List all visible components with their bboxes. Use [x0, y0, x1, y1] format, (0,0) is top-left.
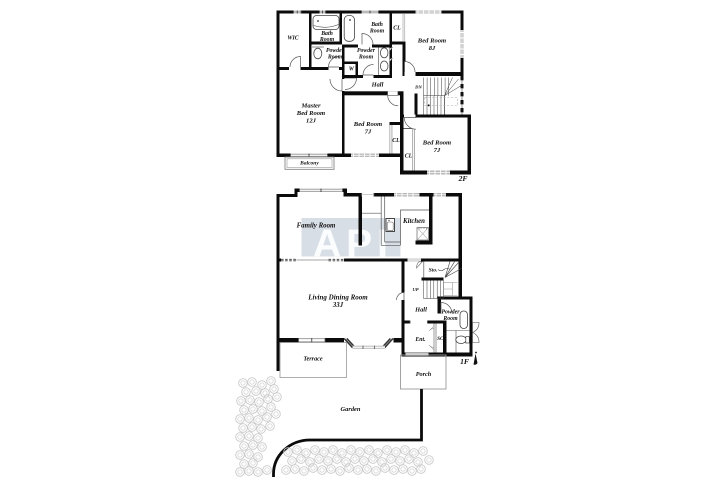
svg-text:Garden: Garden: [341, 406, 361, 413]
svg-text:Powder: Powder: [357, 48, 376, 54]
svg-text:1F: 1F: [460, 357, 469, 366]
svg-text:Bed Room: Bed Room: [422, 140, 451, 147]
svg-text:DN: DN: [414, 85, 422, 90]
svg-text:Balcony: Balcony: [299, 161, 319, 167]
svg-text:Room: Room: [442, 316, 458, 322]
svg-text:Bed Room: Bed Room: [417, 38, 446, 45]
svg-text:Room: Room: [319, 37, 335, 43]
svg-text:8J: 8J: [429, 45, 436, 52]
svg-text:Room: Room: [369, 29, 385, 35]
svg-text:Terrace: Terrace: [303, 356, 323, 363]
svg-text:Family Room: Family Room: [297, 223, 336, 230]
svg-text:Bath: Bath: [370, 22, 383, 28]
svg-text:Bed Room: Bed Room: [296, 110, 325, 117]
svg-text:12J: 12J: [306, 117, 317, 124]
svg-text:Hall: Hall: [414, 307, 427, 314]
svg-text:Powder: Powder: [326, 48, 345, 54]
svg-text:Porch: Porch: [416, 371, 432, 378]
svg-text:2F: 2F: [458, 174, 468, 183]
svg-text:Hall: Hall: [371, 82, 384, 89]
svg-text:Sto.: Sto.: [429, 268, 438, 274]
svg-text:Ent.: Ent.: [414, 337, 425, 343]
svg-text:SC: SC: [437, 336, 444, 342]
svg-text:Master: Master: [300, 102, 320, 109]
svg-text:CL: CL: [392, 138, 400, 144]
svg-text:33J: 33J: [332, 302, 344, 309]
svg-text:Powder: Powder: [441, 310, 460, 316]
svg-text:Bed Room: Bed Room: [353, 121, 382, 128]
svg-text:Kitchen: Kitchen: [402, 218, 425, 225]
svg-text:Living Dining Room: Living Dining Room: [307, 294, 368, 302]
svg-text:W: W: [349, 67, 355, 73]
svg-text:UP: UP: [412, 287, 418, 292]
svg-text:CL: CL: [405, 154, 413, 160]
svg-text:CL: CL: [393, 26, 401, 32]
svg-text:7J: 7J: [365, 128, 372, 135]
svg-text:Room: Room: [327, 55, 343, 61]
svg-text:Room: Room: [358, 55, 374, 61]
svg-text:7J: 7J: [434, 147, 441, 154]
svg-text:WIC: WIC: [287, 36, 298, 42]
